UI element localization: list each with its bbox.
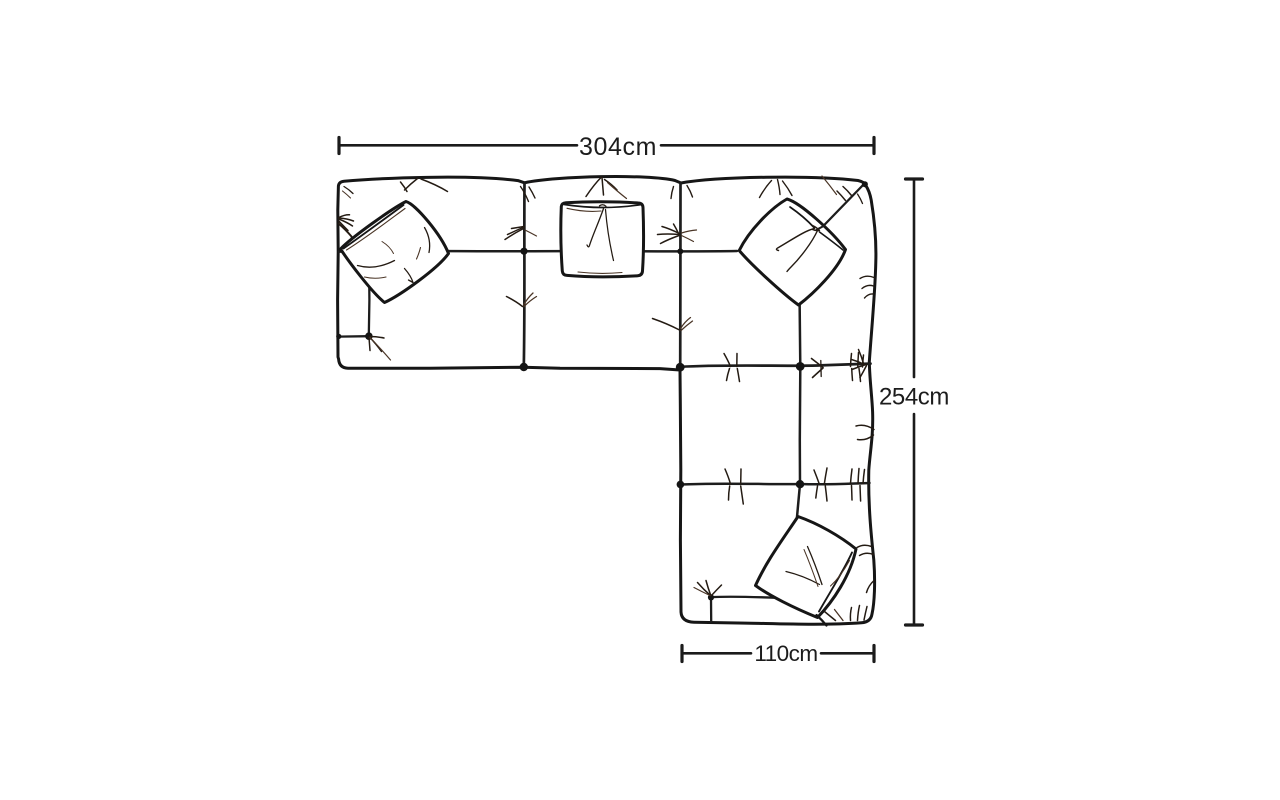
svg-text:110cm: 110cm bbox=[754, 641, 817, 666]
svg-text:254cm: 254cm bbox=[879, 384, 949, 411]
svg-text:304cm: 304cm bbox=[579, 133, 657, 161]
